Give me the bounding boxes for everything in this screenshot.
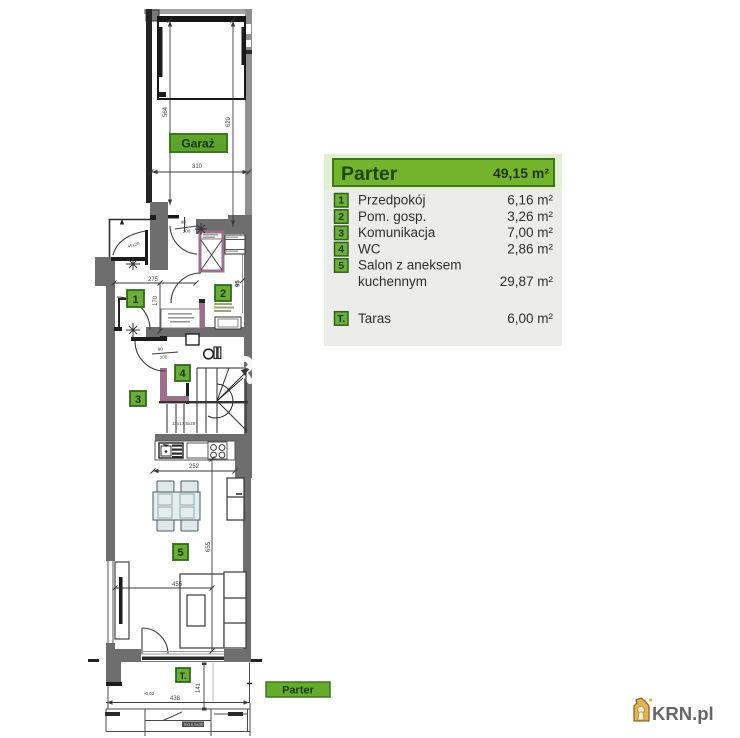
svg-text:5: 5	[338, 260, 344, 272]
svg-text:95: 95	[236, 280, 242, 287]
svg-text:5: 5	[177, 547, 183, 559]
svg-text:9x16,5x30: 9x16,5x30	[184, 722, 204, 727]
svg-text:KRN.pl: KRN.pl	[652, 703, 714, 724]
svg-text:252: 252	[189, 464, 200, 470]
svg-text:-0,02: -0,02	[144, 691, 155, 696]
svg-text:620: 620	[226, 116, 232, 127]
svg-text:200: 200	[160, 354, 168, 360]
svg-text:Garaż: Garaż	[181, 137, 214, 151]
svg-text:13x17,5x28: 13x17,5x28	[172, 421, 196, 426]
svg-text:275: 275	[148, 277, 159, 283]
svg-text:Parter: Parter	[341, 163, 398, 185]
svg-text:Pom. gosp.: Pom. gosp.	[358, 209, 426, 224]
svg-text:Parter: Parter	[282, 685, 315, 697]
svg-text:T.: T.	[179, 671, 186, 681]
svg-text:455: 455	[172, 582, 183, 588]
svg-text:T.: T.	[337, 313, 345, 325]
svg-text:2: 2	[338, 211, 344, 223]
svg-text:6,16 m²: 6,16 m²	[507, 193, 553, 208]
svg-text:3: 3	[135, 394, 141, 406]
svg-text:1: 1	[338, 195, 344, 207]
svg-text:Przedpokój: Przedpokój	[358, 193, 426, 208]
svg-text:4: 4	[179, 368, 186, 380]
svg-text:200: 200	[183, 228, 191, 234]
svg-text:3,26 m²: 3,26 m²	[507, 209, 553, 224]
svg-text:564: 564	[163, 106, 169, 117]
svg-text:170: 170	[153, 295, 159, 306]
svg-text:Salon z aneksem: Salon z aneksem	[358, 258, 462, 273]
svg-text:4: 4	[338, 244, 344, 256]
svg-text:3: 3	[338, 227, 344, 239]
svg-text:438: 438	[170, 696, 181, 702]
svg-text:Komunikacja: Komunikacja	[358, 225, 436, 240]
svg-text:29,87 m²: 29,87 m²	[500, 274, 554, 289]
svg-text:kuchennym: kuchennym	[358, 274, 427, 289]
svg-text:2: 2	[220, 288, 226, 300]
svg-text:2,86 m²: 2,86 m²	[507, 241, 553, 256]
svg-text:WC: WC	[358, 241, 381, 256]
svg-text:1: 1	[132, 294, 138, 306]
svg-text:6,00 m²: 6,00 m²	[507, 311, 553, 326]
svg-text:655: 655	[206, 541, 212, 552]
svg-text:310: 310	[192, 164, 203, 170]
svg-text:7,00 m²: 7,00 m²	[507, 225, 553, 240]
svg-text:Taras: Taras	[358, 311, 391, 326]
svg-text:49,15 m²: 49,15 m²	[493, 165, 549, 181]
svg-text:141: 141	[196, 682, 202, 693]
